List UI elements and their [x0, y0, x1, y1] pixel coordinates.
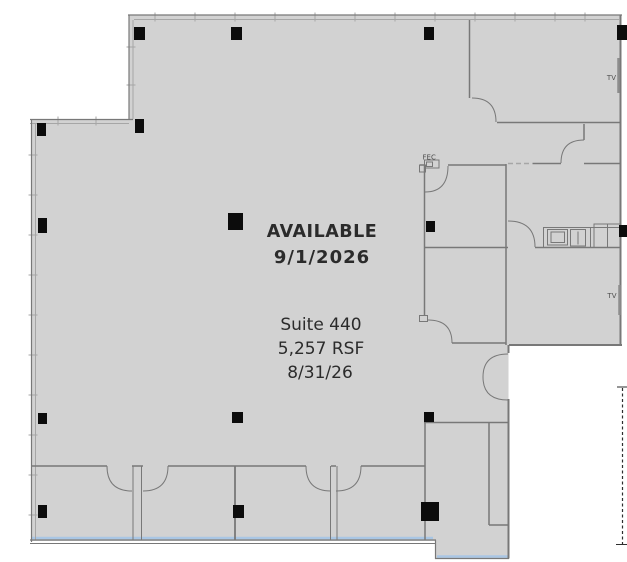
column [38, 505, 47, 518]
column [232, 412, 243, 423]
column [38, 413, 47, 424]
suite-area-label: 5,257 RSF [278, 339, 364, 359]
fec-label: FEC [423, 154, 436, 162]
suite-name-label: Suite 440 [280, 315, 361, 335]
column [134, 27, 145, 40]
tv-lower-label: TV [606, 292, 616, 300]
column [424, 412, 434, 422]
column [228, 213, 243, 230]
suite-date-label: 8/31/26 [287, 363, 353, 383]
column [233, 505, 244, 518]
floor-plan-image: AVAILABLE 9/1/2026 Suite 440 5,257 RSF 8… [0, 0, 627, 562]
column [231, 27, 242, 40]
column [426, 221, 435, 232]
column [617, 25, 627, 40]
availability-date-label: 9/1/2026 [274, 247, 370, 268]
tv-upper-label: TV [606, 74, 616, 82]
column [37, 123, 46, 136]
column [38, 218, 47, 233]
column [135, 119, 144, 133]
column [421, 502, 439, 521]
floor-plan-svg: AVAILABLE 9/1/2026 Suite 440 5,257 RSF 8… [0, 0, 627, 562]
suite-info-block: Suite 440 5,257 RSF 8/31/26 [278, 315, 364, 383]
column [424, 27, 434, 40]
availability-status-label: AVAILABLE [267, 222, 377, 242]
column [619, 225, 627, 237]
